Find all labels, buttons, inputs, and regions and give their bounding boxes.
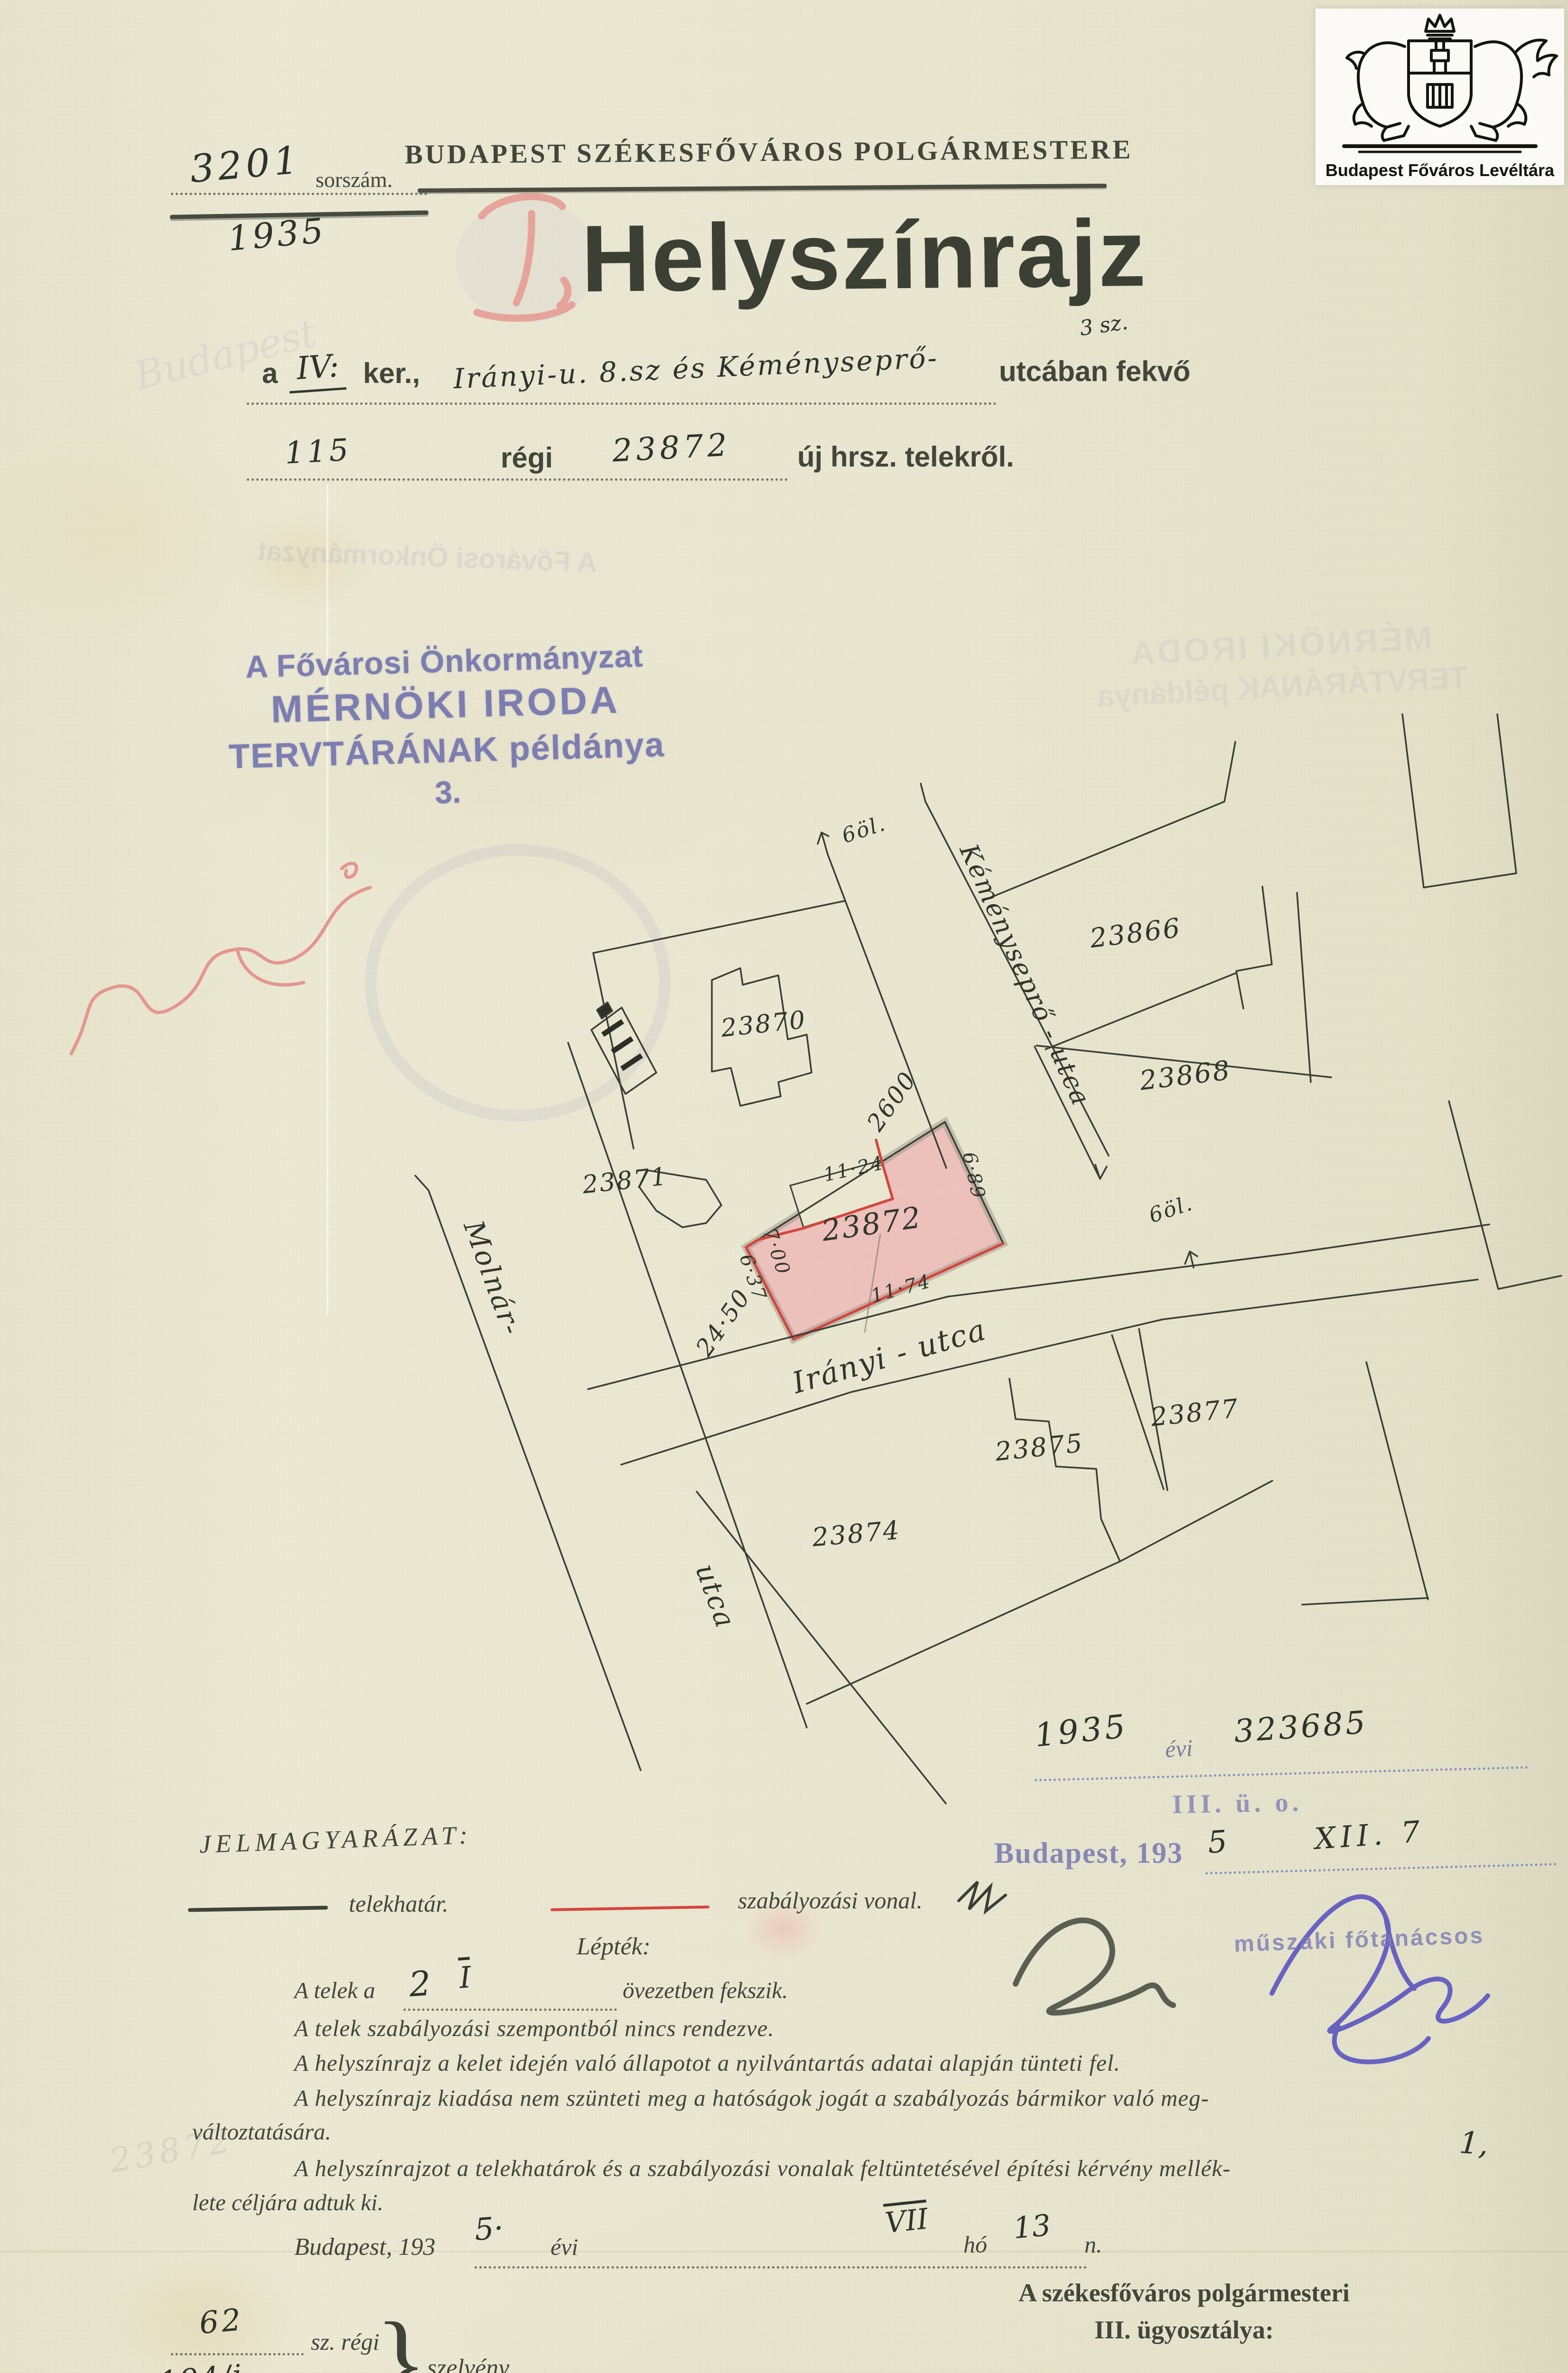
zone-pre: A telek a <box>294 1977 375 2004</box>
date-year-digit-handwritten: 5 <box>1206 1824 1228 1861</box>
dateline-ho: hó <box>963 2231 987 2258</box>
street-handwritten: Irányi-u. 8.sz és Kéményseprő- <box>453 342 939 395</box>
document-title: Helyszínrajz <box>581 199 1148 314</box>
location-dotted-line <box>247 402 997 405</box>
street-label-molnar: Molnár- <box>457 1216 529 1340</box>
szelveny-label: szelvény. <box>427 2354 514 2373</box>
ker-label: ker., <box>363 357 420 390</box>
department-stamp: III. ü. o. <box>1172 1787 1303 1820</box>
paragraph-3a: A helyszínrajz kiadása nem szünteti meg … <box>294 2084 1209 2111</box>
legend-red-line <box>551 1906 709 1911</box>
dateline-day-handwritten: 13 <box>1012 2208 1052 2246</box>
zone-class-handwritten: I <box>458 1960 472 1995</box>
red-index-stamp <box>456 180 598 337</box>
district-handwritten: IV: <box>295 347 340 387</box>
szelveny-old-label: sz. régi <box>311 2328 379 2355</box>
ghost-parcel-number: 23872 <box>107 2121 236 2180</box>
szelveny-old-number: 62 <box>198 2302 245 2341</box>
dateline-n: n. <box>1084 2231 1102 2258</box>
parcel-label-23877: 23877 <box>1149 1393 1241 1432</box>
legend-szabvonal-label: szabályozási vonal. <box>738 1887 923 1914</box>
parcel-regi-label: régi <box>501 441 553 474</box>
serial-label: sorszám. <box>316 167 392 192</box>
date-stamp-city: Budapest, 193 <box>994 1837 1183 1870</box>
stamp-bleed-right: MÉRNÖKI IRODA TERVTÁRÁNAK példánya <box>971 610 1568 720</box>
lepteke-label: Lépték: <box>577 1933 651 1961</box>
dateline-dotted <box>475 2266 1087 2269</box>
parcel-label-23868: 23868 <box>1138 1055 1233 1097</box>
street-label-kemenysepro: Kéményseprő - utca <box>953 839 1096 1111</box>
house-number-superscript: 3 sz. <box>1078 310 1129 341</box>
szelveny-brace: } <box>375 2296 427 2373</box>
dateline-year-handwritten: 5· <box>473 2211 504 2248</box>
legend-black-line <box>188 1906 328 1912</box>
stamp-bleed-upper: A Fővárosi Önkormányzat <box>71 529 783 585</box>
svg-text:24·50: 24·50 <box>690 1284 756 1362</box>
zone-number-handwritten: 2 <box>408 1963 432 2005</box>
parcel-old-number: 115 <box>284 432 352 471</box>
zone-dotted <box>403 2009 617 2011</box>
signature-heading-2: III. ügyosztálya: <box>935 2315 1433 2345</box>
signature-heading-1: A székesfőváros polgármesteri <box>935 2278 1433 2308</box>
parcel-label-23875: 23875 <box>993 1428 1085 1467</box>
main-signature <box>1096 2342 1391 2373</box>
paragraph-1: A telek szabályozási szempontból nincs r… <box>294 2015 775 2042</box>
site-plan-map: 23866 23868 23870 23871 23872 23874 2387… <box>285 712 1566 1875</box>
dateline-city: Budapest, 193 <box>294 2233 436 2261</box>
page-mark-upper: 1, <box>1458 2125 1489 2162</box>
serial-dotted-line <box>171 193 427 195</box>
paragraph-4a: A helyszínrajzot a telekhatárok és a sza… <box>294 2155 1231 2182</box>
serial-year: 1935 <box>226 210 328 259</box>
parcel-label-23871: 23871 <box>580 1162 669 1200</box>
szelveny-new-number: 194/i <box>158 2357 245 2373</box>
district-underline <box>289 387 346 393</box>
svg-text:2600: 2600 <box>861 1066 922 1137</box>
faded-round-stamp <box>371 850 665 1116</box>
parcel-new-number: 23872 <box>611 427 732 469</box>
fold-crease-horizontal <box>0 2251 1568 2252</box>
parcel-suffix: új hrsz. telekről. <box>797 440 1014 473</box>
parcel-label-23866: 23866 <box>1088 913 1183 954</box>
ghost-handwriting: Budapest <box>130 310 321 399</box>
dateline-month-handwritten: VII <box>884 2202 930 2240</box>
location-suffix: utcában fekvő <box>999 355 1190 388</box>
ol-label-top: 6öl. <box>839 811 889 848</box>
parcel-label-23874: 23874 <box>811 1515 902 1552</box>
document-page: Budapest Főváros Levéltára BUDAPEST SZÉK… <box>0 0 1568 2373</box>
ol-label-right: 6öl. <box>1146 1191 1196 1228</box>
szelveny-old-dotted <box>171 2353 304 2355</box>
street-label-molnar-utca: utca <box>689 1560 742 1633</box>
paragraph-2: A helyszínrajz a kelet idején való állap… <box>294 2049 1120 2076</box>
dark-signature <box>1001 1889 1182 2012</box>
zone-post: övezetben fekszik. <box>623 1977 788 2004</box>
loc-prefix: a <box>262 357 278 390</box>
annotation-scribble <box>952 1865 1018 1927</box>
parcel-dotted-line <box>247 478 788 481</box>
dateline-evi: évi <box>551 2233 578 2261</box>
serial-number: 3201 <box>188 138 303 191</box>
evi-stamp: évi <box>1165 1734 1194 1763</box>
paragraph-4b: lete céljára adtuk ki. <box>192 2189 383 2216</box>
legend-telekhatar-label: telekhatár. <box>349 1890 448 1917</box>
